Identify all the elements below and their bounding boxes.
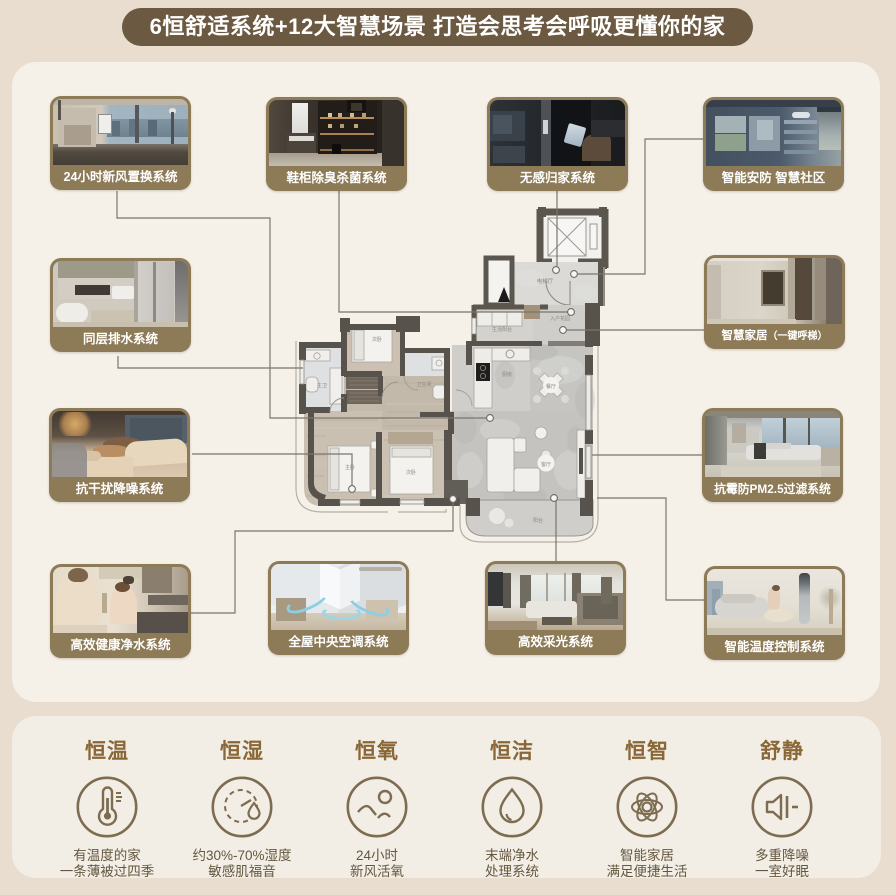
svg-text:主卧: 主卧: [345, 464, 355, 471]
svg-text:阳台: 阳台: [533, 517, 543, 524]
svg-text:入户花园: 入户花园: [550, 315, 570, 322]
svg-text:餐厅: 餐厅: [546, 383, 556, 390]
svg-text:次卧: 次卧: [406, 469, 416, 476]
svg-text:电梯厅: 电梯厅: [537, 277, 554, 285]
svg-text:主卫: 主卫: [317, 382, 327, 389]
svg-text:客厅: 客厅: [541, 461, 551, 468]
svg-text:厨房: 厨房: [502, 371, 512, 378]
svg-text:生活阳台: 生活阳台: [492, 326, 512, 333]
svg-text:卫生间: 卫生间: [416, 381, 431, 388]
svg-text:次卧: 次卧: [372, 336, 382, 343]
